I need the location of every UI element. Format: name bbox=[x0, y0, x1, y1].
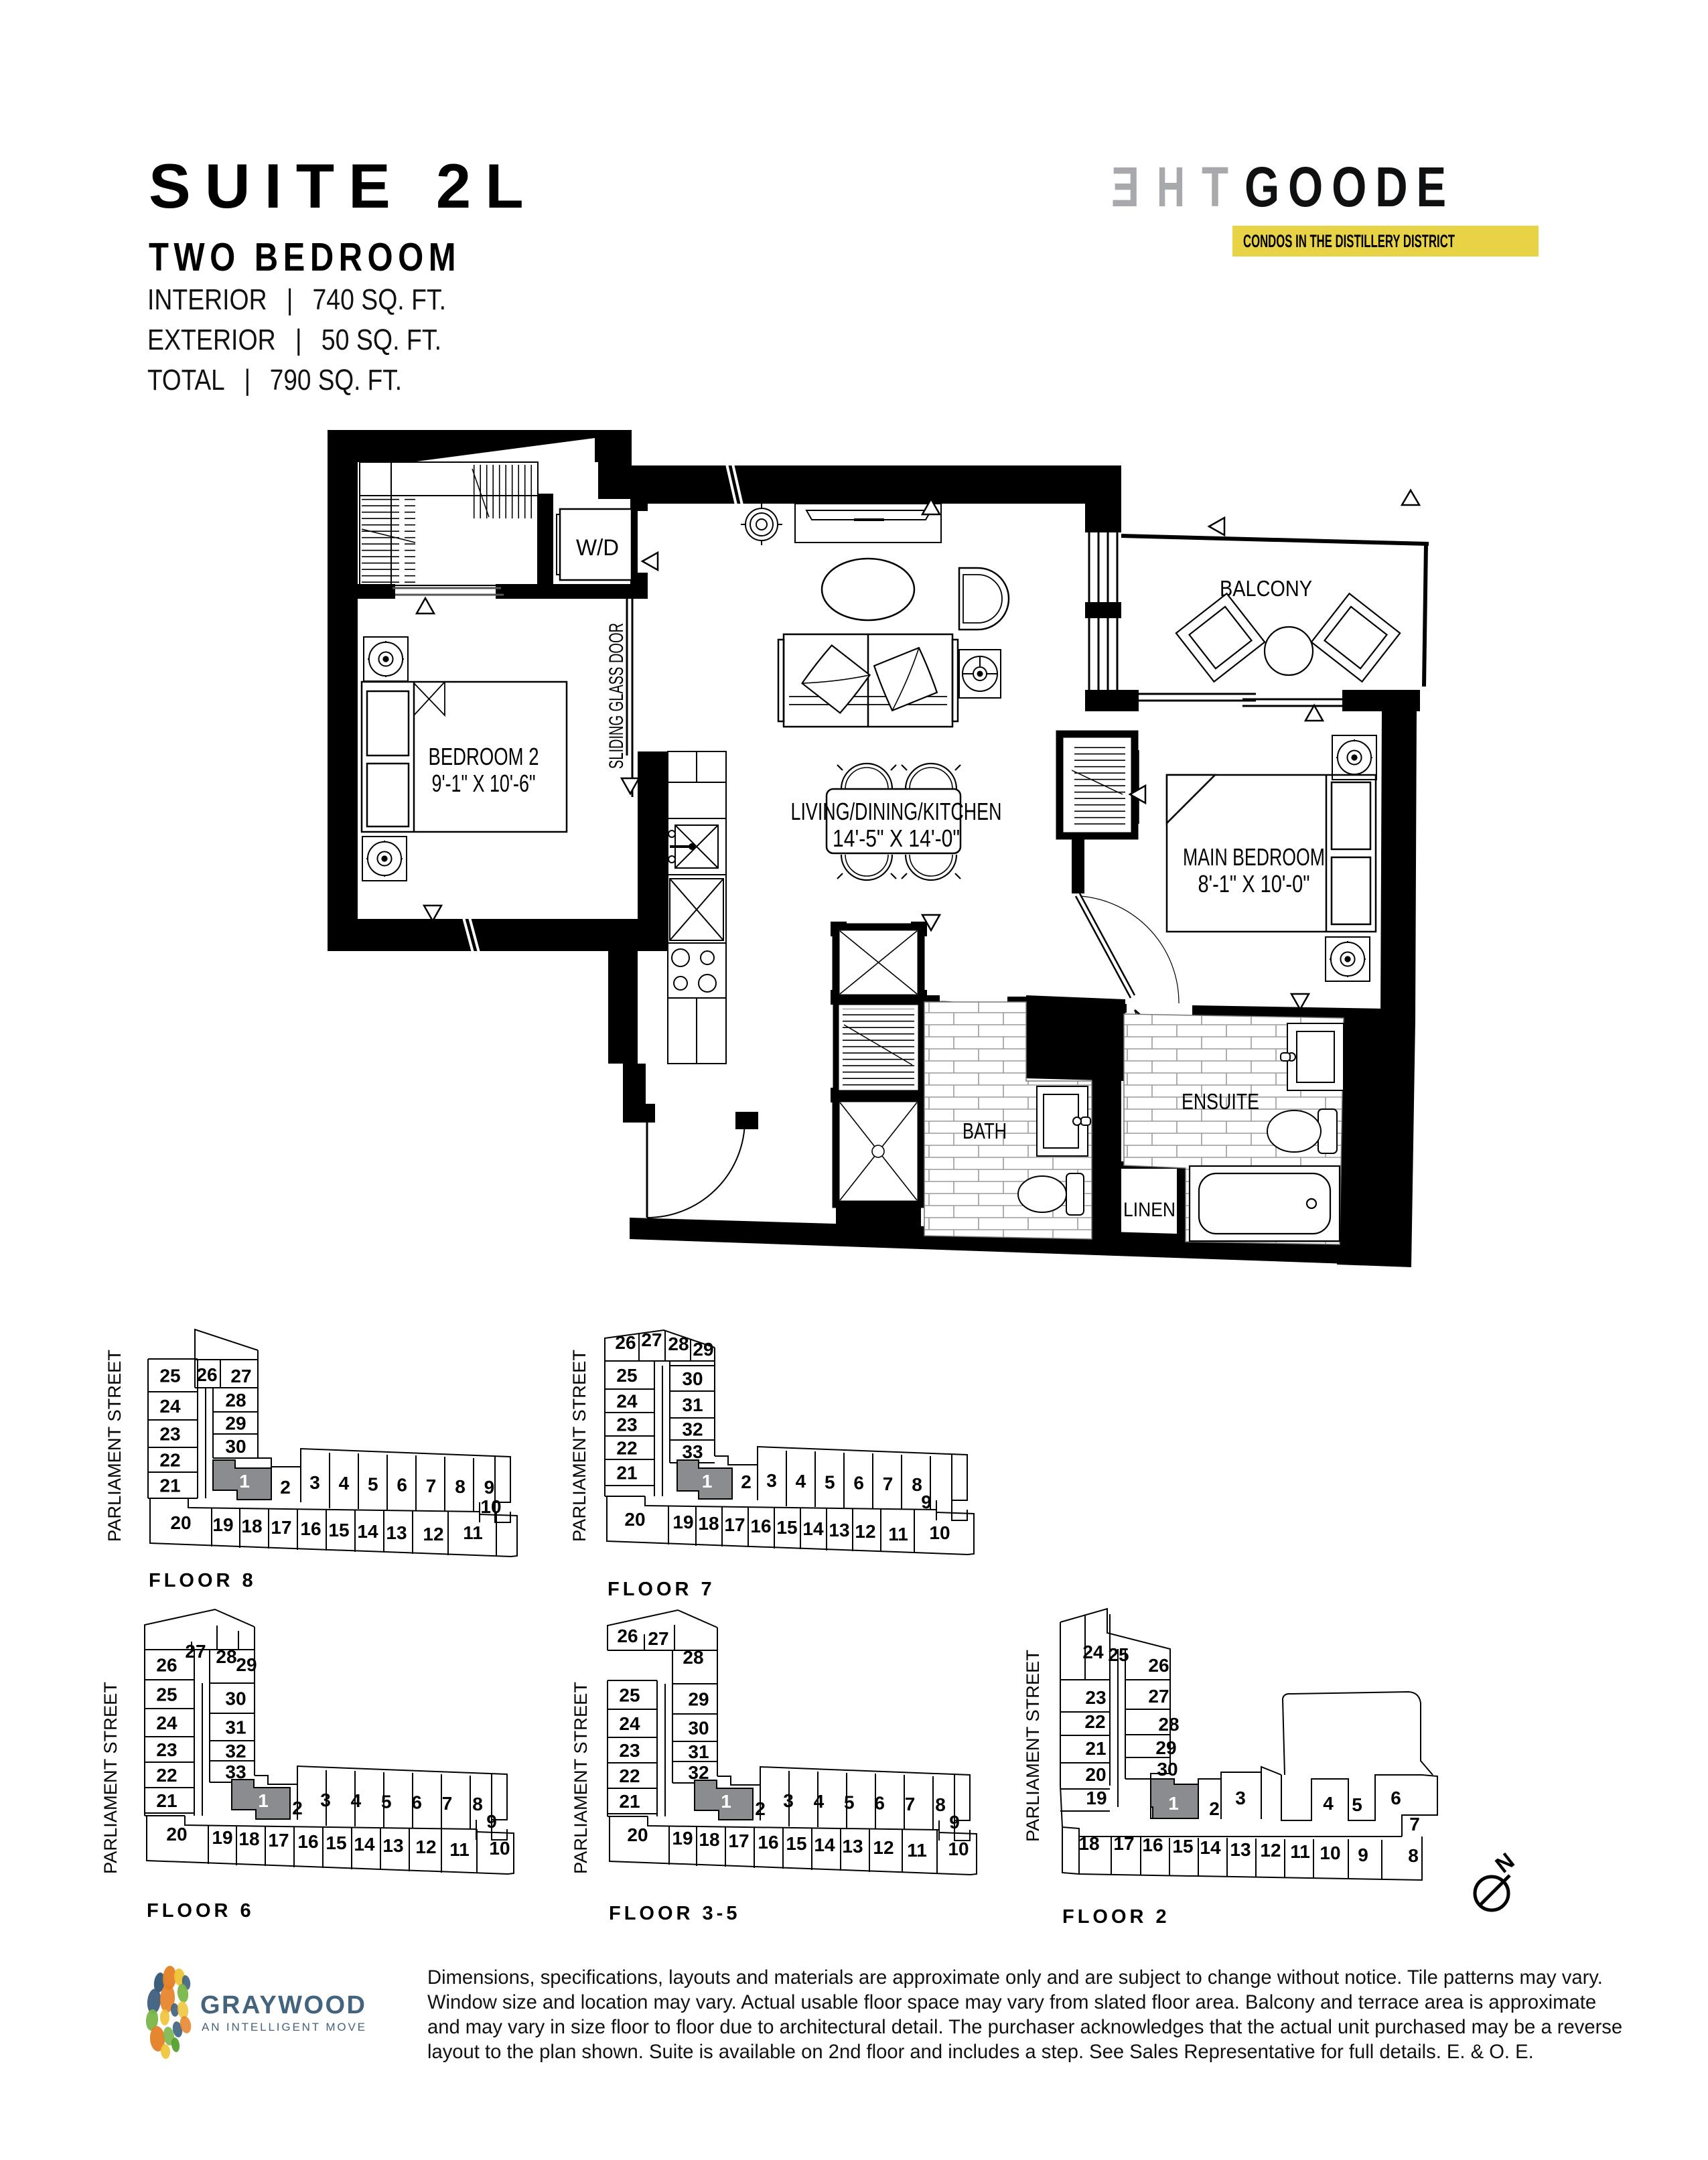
svg-text:4: 4 bbox=[351, 1790, 362, 1811]
svg-text:SLIDING GLASS DOOR: SLIDING GLASS DOOR bbox=[606, 623, 628, 769]
svg-text:PARLIAMENT STREET: PARLIAMENT STREET bbox=[569, 1350, 589, 1542]
svg-text:16: 16 bbox=[300, 1518, 321, 1539]
svg-text:1: 1 bbox=[1168, 1793, 1179, 1814]
svg-text:GRAYWOOD: GRAYWOOD bbox=[200, 1991, 365, 2019]
svg-text:6: 6 bbox=[874, 1793, 885, 1814]
svg-text:8: 8 bbox=[935, 1794, 946, 1815]
svg-text:Window size and location may v: Window size and location may vary. Actua… bbox=[427, 1992, 1596, 2013]
svg-text:GOODE: GOODE bbox=[1244, 155, 1455, 218]
svg-text:10: 10 bbox=[480, 1496, 501, 1517]
svg-text:layout to the plan shown. Suit: layout to the plan shown. Suite is avail… bbox=[427, 2041, 1534, 2063]
svg-text:FLOOR 8: FLOOR 8 bbox=[149, 1570, 257, 1591]
svg-text:4: 4 bbox=[814, 1791, 825, 1812]
svg-text:H: H bbox=[1157, 155, 1185, 218]
svg-text:9: 9 bbox=[486, 1811, 497, 1832]
svg-text:22: 22 bbox=[616, 1438, 637, 1459]
svg-text:5: 5 bbox=[844, 1792, 855, 1812]
svg-text:29: 29 bbox=[1155, 1737, 1176, 1758]
svg-text:13: 13 bbox=[382, 1835, 403, 1856]
svg-text:Dimensions, specifications, la: Dimensions, specifications, layouts and … bbox=[427, 1967, 1603, 1989]
svg-text:11: 11 bbox=[888, 1524, 908, 1544]
svg-text:FLOOR 7: FLOOR 7 bbox=[608, 1579, 715, 1600]
svg-text:16: 16 bbox=[750, 1516, 771, 1536]
svg-text:11: 11 bbox=[1290, 1841, 1310, 1862]
svg-text:SUITE 2L: SUITE 2L bbox=[149, 151, 538, 221]
svg-text:17: 17 bbox=[728, 1830, 749, 1851]
svg-text:28: 28 bbox=[1158, 1714, 1179, 1735]
svg-text:23: 23 bbox=[616, 1415, 637, 1435]
svg-text:19: 19 bbox=[672, 1828, 693, 1849]
svg-text:31: 31 bbox=[688, 1741, 709, 1762]
svg-text:22: 22 bbox=[159, 1450, 180, 1471]
svg-text:24: 24 bbox=[619, 1713, 640, 1734]
svg-text:31: 31 bbox=[682, 1394, 703, 1415]
svg-text:18: 18 bbox=[699, 1829, 719, 1850]
svg-text:33: 33 bbox=[682, 1441, 703, 1462]
svg-text:19: 19 bbox=[1086, 1788, 1107, 1808]
svg-text:30: 30 bbox=[225, 1688, 246, 1709]
svg-text:27: 27 bbox=[1148, 1686, 1169, 1707]
svg-text:20: 20 bbox=[624, 1509, 645, 1530]
svg-text:13: 13 bbox=[386, 1522, 407, 1543]
svg-text:9: 9 bbox=[949, 1812, 960, 1832]
svg-text:3: 3 bbox=[320, 1790, 331, 1810]
svg-text:25: 25 bbox=[616, 1365, 637, 1386]
svg-text:20: 20 bbox=[627, 1824, 648, 1845]
svg-text:30: 30 bbox=[688, 1718, 709, 1739]
svg-text:13: 13 bbox=[829, 1520, 849, 1540]
svg-text:14: 14 bbox=[1200, 1837, 1221, 1858]
svg-text:2: 2 bbox=[741, 1471, 752, 1492]
svg-text:15: 15 bbox=[776, 1517, 797, 1538]
svg-text:9: 9 bbox=[1358, 1845, 1368, 1865]
svg-text:23: 23 bbox=[619, 1740, 640, 1761]
svg-text:24: 24 bbox=[616, 1391, 638, 1412]
svg-text:28: 28 bbox=[668, 1334, 689, 1354]
svg-text:FLOOR 2: FLOOR 2 bbox=[1062, 1906, 1170, 1928]
svg-text:14: 14 bbox=[802, 1518, 824, 1539]
svg-text:CONDOS IN THE DISTILLERY DISTR: CONDOS IN THE DISTILLERY DISTRICT bbox=[1243, 231, 1455, 251]
svg-text:25: 25 bbox=[156, 1684, 177, 1705]
svg-text:E: E bbox=[1111, 155, 1139, 218]
svg-text:18: 18 bbox=[238, 1828, 259, 1849]
svg-text:13: 13 bbox=[1230, 1839, 1251, 1860]
svg-text:1: 1 bbox=[721, 1791, 731, 1812]
svg-text:PARLIAMENT STREET: PARLIAMENT STREET bbox=[571, 1682, 591, 1874]
svg-text:28: 28 bbox=[683, 1647, 703, 1668]
svg-text:15: 15 bbox=[1172, 1836, 1193, 1857]
svg-text:5: 5 bbox=[825, 1471, 835, 1492]
svg-text:12: 12 bbox=[855, 1521, 875, 1542]
svg-text:11: 11 bbox=[463, 1522, 483, 1543]
svg-text:10: 10 bbox=[489, 1838, 510, 1859]
svg-text:14: 14 bbox=[357, 1521, 378, 1542]
svg-text:22: 22 bbox=[1084, 1711, 1105, 1732]
svg-text:16: 16 bbox=[297, 1831, 318, 1852]
svg-text:11: 11 bbox=[907, 1840, 927, 1861]
svg-text:27: 27 bbox=[230, 1366, 251, 1386]
svg-text:30: 30 bbox=[1157, 1759, 1178, 1780]
svg-text:26: 26 bbox=[617, 1626, 638, 1646]
svg-text:27: 27 bbox=[641, 1329, 662, 1350]
svg-text:26: 26 bbox=[156, 1655, 177, 1676]
svg-text:16: 16 bbox=[758, 1832, 778, 1853]
svg-text:5: 5 bbox=[1352, 1794, 1362, 1815]
svg-text:TOTAL | 790 SQ. FT.: TOTAL | 790 SQ. FT. bbox=[147, 364, 402, 397]
svg-text:8: 8 bbox=[472, 1794, 483, 1814]
svg-text:6: 6 bbox=[1391, 1788, 1401, 1808]
svg-text:28: 28 bbox=[225, 1390, 246, 1411]
svg-text:28: 28 bbox=[216, 1646, 236, 1667]
svg-text:ENSUITE: ENSUITE bbox=[1182, 1089, 1259, 1114]
svg-text:27: 27 bbox=[185, 1641, 206, 1662]
svg-text:6: 6 bbox=[397, 1475, 407, 1496]
svg-text:32: 32 bbox=[688, 1762, 709, 1783]
svg-text:PARLIAMENT STREET: PARLIAMENT STREET bbox=[100, 1682, 121, 1874]
svg-text:17: 17 bbox=[1113, 1833, 1134, 1854]
svg-text:AN INTELLIGENT MOVE: AN INTELLIGENT MOVE bbox=[202, 2021, 365, 2033]
svg-text:8'-1" X 10'-0": 8'-1" X 10'-0" bbox=[1198, 870, 1310, 897]
svg-text:10: 10 bbox=[929, 1522, 950, 1543]
svg-text:4: 4 bbox=[339, 1473, 350, 1494]
svg-text:9: 9 bbox=[484, 1477, 495, 1498]
svg-text:32: 32 bbox=[682, 1419, 703, 1440]
svg-text:1: 1 bbox=[258, 1790, 269, 1811]
svg-text:TWO BEDROOM: TWO BEDROOM bbox=[149, 235, 461, 279]
svg-text:LINEN: LINEN bbox=[1123, 1199, 1176, 1221]
svg-text:9: 9 bbox=[921, 1492, 932, 1512]
svg-text:12: 12 bbox=[423, 1524, 443, 1544]
svg-text:32: 32 bbox=[225, 1741, 246, 1761]
svg-text:20: 20 bbox=[170, 1512, 191, 1533]
svg-text:2: 2 bbox=[280, 1477, 291, 1498]
svg-text:LIVING/DINING/KITCHEN: LIVING/DINING/KITCHEN bbox=[791, 798, 1002, 825]
svg-text:7: 7 bbox=[426, 1475, 437, 1496]
svg-text:21: 21 bbox=[159, 1475, 180, 1496]
svg-text:BEDROOM 2: BEDROOM 2 bbox=[429, 743, 539, 770]
svg-text:7: 7 bbox=[1409, 1814, 1420, 1834]
svg-text:12: 12 bbox=[1260, 1840, 1281, 1861]
svg-text:N: N bbox=[1491, 1848, 1520, 1878]
svg-text:2: 2 bbox=[1209, 1798, 1220, 1819]
svg-text:8: 8 bbox=[1408, 1845, 1419, 1866]
svg-text:3: 3 bbox=[309, 1472, 320, 1493]
svg-text:15: 15 bbox=[326, 1832, 346, 1853]
svg-text:29: 29 bbox=[225, 1413, 246, 1434]
svg-text:19: 19 bbox=[212, 1514, 233, 1535]
svg-text:19: 19 bbox=[212, 1827, 232, 1848]
svg-text:2: 2 bbox=[292, 1798, 303, 1818]
svg-text:31: 31 bbox=[225, 1717, 246, 1738]
svg-text:22: 22 bbox=[156, 1765, 177, 1786]
svg-text:24: 24 bbox=[1082, 1642, 1104, 1662]
svg-text:10: 10 bbox=[1320, 1843, 1340, 1863]
svg-text:23: 23 bbox=[159, 1424, 180, 1445]
svg-text:7: 7 bbox=[905, 1794, 916, 1814]
svg-text:14'-5" X 14'-0": 14'-5" X 14'-0" bbox=[833, 824, 960, 852]
svg-text:25: 25 bbox=[1108, 1644, 1129, 1665]
svg-text:2: 2 bbox=[755, 1798, 766, 1819]
svg-text:3: 3 bbox=[1235, 1788, 1246, 1808]
svg-text:29: 29 bbox=[693, 1339, 713, 1360]
svg-text:20: 20 bbox=[1085, 1764, 1106, 1785]
svg-text:6: 6 bbox=[853, 1473, 864, 1494]
svg-text:21: 21 bbox=[156, 1790, 177, 1811]
svg-text:24: 24 bbox=[156, 1713, 177, 1733]
svg-text:17: 17 bbox=[268, 1830, 289, 1851]
svg-text:23: 23 bbox=[1085, 1687, 1106, 1708]
svg-text:26: 26 bbox=[196, 1364, 217, 1385]
svg-text:23: 23 bbox=[156, 1739, 177, 1760]
svg-text:T: T bbox=[1202, 155, 1228, 218]
svg-text:8: 8 bbox=[455, 1476, 466, 1497]
svg-text:PARLIAMENT STREET: PARLIAMENT STREET bbox=[1023, 1650, 1043, 1842]
svg-text:17: 17 bbox=[271, 1517, 291, 1538]
svg-text:29: 29 bbox=[688, 1689, 709, 1710]
svg-text:1: 1 bbox=[702, 1471, 713, 1492]
svg-text:BATH: BATH bbox=[963, 1119, 1007, 1143]
svg-text:7: 7 bbox=[442, 1793, 453, 1814]
svg-text:18: 18 bbox=[241, 1516, 262, 1536]
svg-text:26: 26 bbox=[615, 1332, 636, 1353]
svg-text:30: 30 bbox=[682, 1368, 703, 1389]
svg-text:BALCONY: BALCONY bbox=[1220, 576, 1312, 601]
svg-text:MAIN BEDROOM: MAIN BEDROOM bbox=[1183, 843, 1325, 871]
svg-text:9'-1" X 10'-6": 9'-1" X 10'-6" bbox=[432, 770, 536, 797]
svg-text:18: 18 bbox=[1078, 1833, 1099, 1854]
svg-text:4: 4 bbox=[1323, 1793, 1334, 1814]
svg-text:33: 33 bbox=[225, 1761, 246, 1782]
svg-text:6: 6 bbox=[411, 1792, 422, 1813]
svg-text:25: 25 bbox=[619, 1685, 640, 1706]
svg-text:24: 24 bbox=[159, 1396, 181, 1417]
svg-text:26: 26 bbox=[1148, 1655, 1169, 1676]
svg-text:4: 4 bbox=[796, 1471, 806, 1492]
svg-text:25: 25 bbox=[159, 1366, 180, 1386]
svg-text:14: 14 bbox=[814, 1834, 835, 1855]
svg-text:14: 14 bbox=[354, 1834, 375, 1855]
svg-text:PARLIAMENT STREET: PARLIAMENT STREET bbox=[104, 1350, 125, 1542]
svg-text:EXTERIOR | 50 SQ. FT.: EXTERIOR | 50 SQ. FT. bbox=[147, 323, 441, 356]
svg-text:27: 27 bbox=[648, 1628, 668, 1649]
svg-text:3: 3 bbox=[766, 1470, 777, 1491]
svg-text:10: 10 bbox=[948, 1839, 969, 1859]
svg-text:12: 12 bbox=[873, 1837, 894, 1858]
svg-text:5: 5 bbox=[368, 1473, 378, 1494]
svg-text:21: 21 bbox=[619, 1791, 640, 1812]
svg-text:12: 12 bbox=[415, 1837, 436, 1857]
svg-text:19: 19 bbox=[672, 1512, 693, 1532]
svg-text:18: 18 bbox=[698, 1513, 719, 1534]
svg-text:30: 30 bbox=[225, 1436, 246, 1457]
svg-text:and may vary in size floor to: and may vary in size floor to floor due … bbox=[427, 2017, 1622, 2038]
svg-text:1: 1 bbox=[239, 1471, 250, 1492]
svg-text:15: 15 bbox=[786, 1833, 806, 1854]
svg-text:FLOOR 3-5: FLOOR 3-5 bbox=[609, 1903, 740, 1924]
svg-text:16: 16 bbox=[1142, 1834, 1163, 1855]
svg-text:5: 5 bbox=[381, 1791, 392, 1812]
svg-text:11: 11 bbox=[449, 1839, 470, 1860]
svg-text:13: 13 bbox=[842, 1836, 863, 1857]
svg-text:7: 7 bbox=[883, 1473, 894, 1494]
svg-text:3: 3 bbox=[783, 1790, 794, 1811]
svg-text:W/D: W/D bbox=[576, 535, 619, 561]
svg-text:15: 15 bbox=[328, 1520, 349, 1540]
svg-text:22: 22 bbox=[619, 1766, 640, 1786]
svg-text:INTERIOR | 740 SQ. FT.: INTERIOR | 740 SQ. FT. bbox=[147, 283, 446, 316]
svg-text:29: 29 bbox=[236, 1654, 257, 1675]
svg-text:17: 17 bbox=[724, 1514, 745, 1535]
svg-text:20: 20 bbox=[166, 1824, 187, 1845]
svg-text:21: 21 bbox=[616, 1463, 637, 1484]
svg-text:21: 21 bbox=[1085, 1738, 1106, 1759]
svg-text:FLOOR 6: FLOOR 6 bbox=[147, 1900, 255, 1922]
